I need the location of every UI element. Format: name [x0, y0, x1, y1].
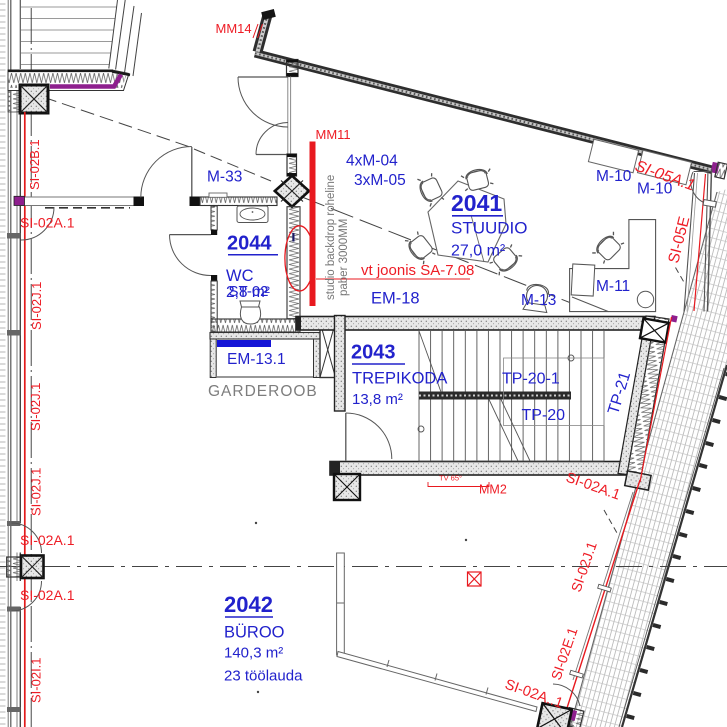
svg-text:MM2: MM2 [479, 483, 507, 497]
svg-text:27,0 m²: 27,0 m² [451, 243, 506, 260]
svg-text:M-10: M-10 [596, 168, 632, 185]
svg-text:M-11: M-11 [596, 278, 630, 295]
svg-text:STUUDIO: STUUDIO [451, 219, 528, 238]
svg-text:23 töölauda: 23 töölauda [224, 668, 303, 685]
svg-text:ST-02: ST-02 [229, 283, 269, 300]
svg-text:2042: 2042 [224, 592, 273, 617]
svg-text:SI-02I.1: SI-02I.1 [29, 657, 44, 703]
svg-text:M-33: M-33 [207, 169, 242, 186]
svg-text:SI-02B.1: SI-02B.1 [27, 139, 42, 190]
svg-text:vt joonis SA-7.08: vt joonis SA-7.08 [361, 262, 474, 279]
svg-text:BÜROO: BÜROO [224, 624, 285, 642]
svg-text:2044: 2044 [227, 233, 272, 255]
svg-text:M-13: M-13 [521, 292, 556, 309]
svg-text:SI-02J.1: SI-02J.1 [29, 468, 44, 516]
svg-text:EM-13.1: EM-13.1 [227, 351, 286, 368]
svg-text:140,3 m²: 140,3 m² [224, 645, 283, 662]
svg-text:GARDEROOB: GARDEROOB [208, 383, 318, 400]
svg-text:MM11: MM11 [316, 127, 351, 142]
svg-text:SI-02A.1: SI-02A.1 [20, 215, 75, 231]
svg-text:2041: 2041 [451, 190, 502, 216]
svg-text:paber 3000MM: paber 3000MM [338, 219, 350, 296]
svg-text:EM-18: EM-18 [371, 290, 420, 308]
svg-text:MM14: MM14 [216, 21, 252, 36]
svg-text:SI-02A.1: SI-02A.1 [20, 532, 75, 548]
svg-text:4xM-04: 4xM-04 [346, 153, 398, 170]
svg-text:TP-20-1: TP-20-1 [502, 371, 560, 388]
svg-text:SI-02J.1: SI-02J.1 [28, 383, 43, 431]
svg-text:TP-20: TP-20 [522, 407, 566, 424]
svg-text:TV 65°: TV 65° [439, 474, 462, 483]
svg-text:SI-02J.1: SI-02J.1 [29, 282, 44, 330]
svg-text:studio backdrop roheline: studio backdrop roheline [325, 175, 337, 300]
svg-text:SI-02A.1: SI-02A.1 [20, 587, 75, 603]
svg-text:2043: 2043 [351, 342, 396, 364]
svg-text:TREPIKODA: TREPIKODA [352, 370, 447, 388]
svg-text:13,8 m²: 13,8 m² [352, 391, 403, 408]
svg-text:3xM-05: 3xM-05 [354, 172, 406, 189]
